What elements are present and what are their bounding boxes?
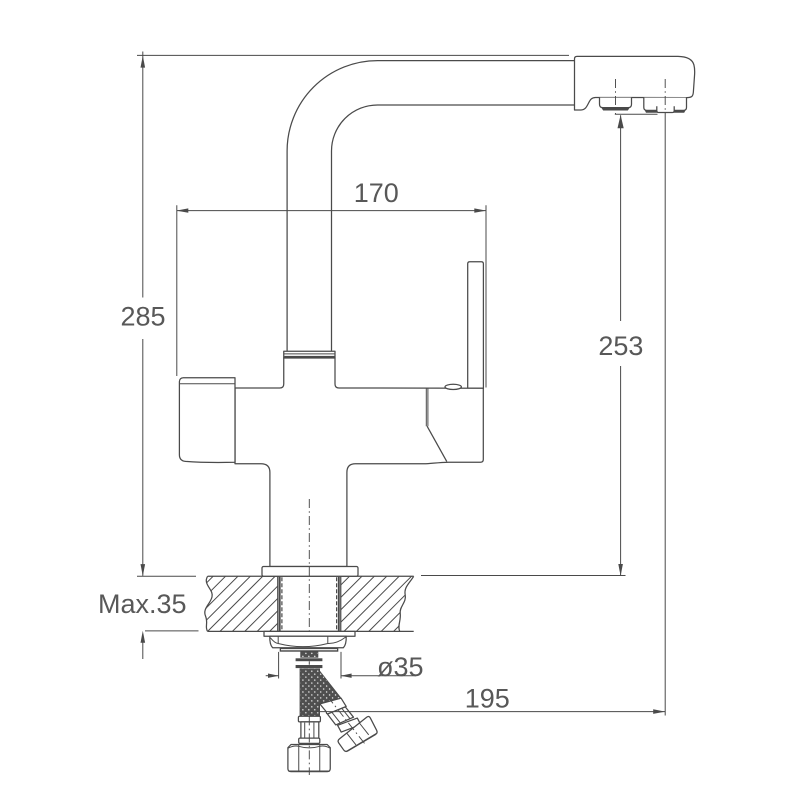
svg-text:253: 253 — [598, 331, 643, 361]
svg-text:Max.35: Max.35 — [98, 589, 187, 619]
svg-text:195: 195 — [465, 683, 510, 713]
svg-text:ø35: ø35 — [377, 652, 424, 682]
svg-text:285: 285 — [120, 302, 165, 332]
svg-text:170: 170 — [354, 178, 399, 208]
